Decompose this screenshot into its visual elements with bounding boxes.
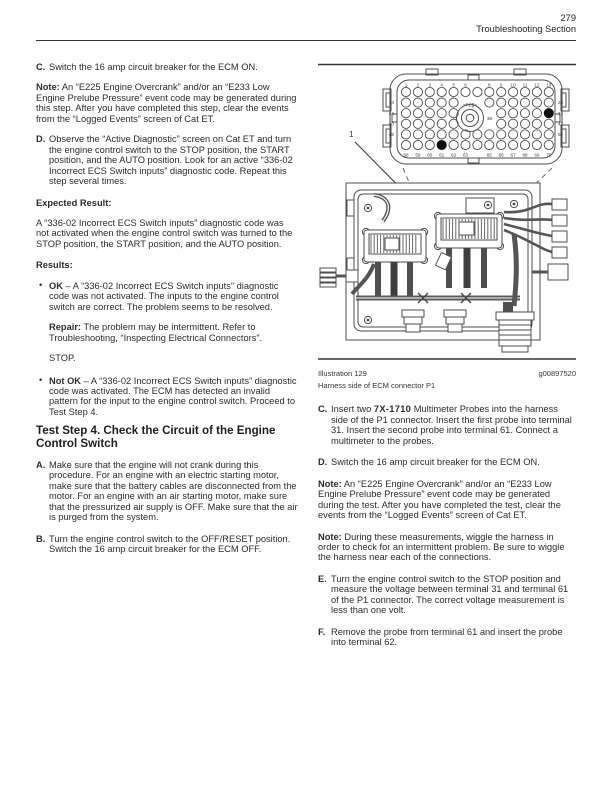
pin-number-label: 6 (464, 83, 467, 88)
pin-number-label: 62 (451, 153, 457, 158)
pin-number-label: 3 (429, 83, 432, 88)
step-f-right: F. Remove the probe from terminal 61 and… (318, 627, 576, 648)
repair-label: Repair: (49, 322, 81, 332)
step-label: D. (36, 134, 45, 144)
figure-number: Illustration 129 (318, 369, 367, 378)
pin-number-label: 5 (452, 83, 455, 88)
step-b-left: B. Turn the engine control switch to the… (36, 534, 298, 555)
bolt-center (367, 207, 370, 210)
result-ok-bullet: • OK – A “336-02 Incorrect ECS Switch in… (36, 281, 298, 312)
pin-number-label: 13 (546, 83, 552, 88)
column-right: 1234568910111213585960616263656667686970… (318, 62, 576, 658)
result-label: OK (49, 281, 63, 291)
expected-result-text: A “336-02 Incorrect ECS Switch inputs” d… (36, 218, 298, 249)
step-a-left: A. Make sure that the engine will not cr… (36, 460, 298, 523)
bolt-center (367, 319, 370, 322)
step-text-before: Insert two (331, 404, 374, 414)
note-text: During these measurements, wiggle the ha… (318, 532, 565, 563)
manual-page: 279 Troubleshooting Section C. Switch th… (0, 0, 612, 792)
step-text: Make sure that the engine will not crank… (49, 460, 298, 522)
pin-number-label: 58 (403, 153, 409, 158)
page-header: 279 Troubleshooting Section (36, 13, 576, 35)
result-notok-bullet: • Not OK – A “336-02 Incorrect ECS Switc… (36, 376, 298, 418)
result-label: Not OK (49, 376, 81, 386)
illustration-129: 1234568910111213585960616263656667686970… (318, 62, 576, 364)
figure-id: g00897520 (538, 369, 576, 378)
pin-number-label: 24 (389, 111, 395, 116)
pin-number-label: 66 (499, 153, 505, 158)
stop-text: STOP. (49, 353, 298, 363)
step-label: C. (318, 404, 327, 414)
bolt-center (487, 204, 490, 207)
step-label: E. (318, 574, 327, 584)
step-label: A. (36, 460, 45, 470)
step-text: Switch the 16 amp circuit breaker for th… (331, 457, 540, 467)
connector-center-pin-label: 36 (487, 116, 493, 122)
step-text: Switch the 16 amp circuit breaker for th… (49, 62, 258, 72)
pin-number-label: 1 (405, 83, 408, 88)
pin-number-label: 65 (487, 153, 493, 158)
test-step-4-heading: Test Step 4. Check the Circuit of the En… (36, 425, 298, 451)
pin-number-label: 47 (558, 121, 564, 126)
repair-text: The problem may be intermittent. Refer t… (49, 322, 262, 342)
note-label: Note: (318, 532, 342, 542)
pin-number-label: 69 (534, 153, 540, 158)
note-label: Note: (318, 479, 342, 489)
pin-number-label: 10 (511, 83, 517, 88)
pin-number-label: 59 (415, 153, 421, 158)
ecm-connector-diagram: 1234568910111213585960616263656667686970… (318, 62, 576, 362)
note-text: An “E225 Engine Overcrank” and/or an “E2… (36, 82, 296, 123)
pin-number-label: 11 (523, 83, 528, 88)
step-e-right: E. Turn the engine control switch to the… (318, 574, 576, 616)
step-c-left: C. Switch the 16 amp circuit breaker for… (36, 62, 298, 72)
results-heading: Results: (36, 260, 298, 270)
expected-result-heading: Expected Result: (36, 198, 298, 208)
pin-number-label: 31 (558, 111, 564, 116)
pin-number-label: 70 (546, 153, 552, 158)
note-paragraph: Note: An “E225 Engine Overcrank” and/or … (318, 479, 576, 521)
pin-number-label: 4 (440, 83, 443, 88)
pin-number-label: 60 (427, 153, 433, 158)
figure-caption: Harness side of ECM connector P1 (318, 381, 576, 390)
pin-number-label: 67 (511, 153, 517, 158)
step-text: Turn the engine control switch to the OF… (49, 534, 290, 554)
connector-center-mark: >PE[]< (463, 103, 477, 108)
step-d-right: D. Switch the 16 amp circuit breaker for… (318, 457, 576, 467)
page-number: 279 (36, 13, 576, 24)
step-text: Remove the probe from terminal 61 and in… (331, 627, 563, 647)
pin-number-label: 2 (417, 83, 420, 88)
column-left: C. Switch the 16 amp circuit breaker for… (36, 62, 298, 565)
pin-number-label: 23 (558, 100, 564, 105)
step-d-left: D. Observe the “Active Diagnostic” scree… (36, 134, 298, 186)
bullet-glyph: • (39, 280, 42, 290)
step-text: Turn the engine control switch to the ST… (331, 574, 568, 615)
pin-number-label: 8 (488, 83, 491, 88)
step-text: Observe the “Active Diagnostic” screen o… (49, 134, 293, 186)
bullet-glyph: • (39, 375, 42, 385)
pin-number-label: 68 (522, 153, 528, 158)
result-text: A “336-02 Incorrect ECS Switch inputs” d… (49, 281, 279, 312)
pin-number-label: 9 (500, 83, 503, 88)
note-text: An “E225 Engine Overcrank” and/or an “E2… (318, 479, 561, 520)
pin-number-label: 14 (389, 100, 395, 105)
pin-number-label: 61 (439, 153, 445, 158)
pin-number-label: 57 (558, 132, 564, 137)
step-label: B. (36, 534, 45, 544)
pin-number-label: 40 (389, 121, 395, 126)
callout-1-label: 1 (349, 129, 354, 139)
pin-number-label: 63 (463, 153, 469, 158)
step-label: F. (318, 627, 325, 637)
dash: – (66, 281, 71, 291)
repair-paragraph: Repair: The problem may be intermittent.… (49, 322, 298, 343)
header-rule (36, 40, 576, 41)
step-c-right: C. Insert two 7X-1710 Multimeter Probes … (318, 404, 576, 446)
highlighted-pin (437, 140, 446, 149)
note-paragraph: Note: During these measurements, wiggle … (318, 532, 576, 563)
note-paragraph: Note: An “E225 Engine Overcrank” and/or … (36, 82, 298, 124)
pin-number-label: 48 (389, 132, 395, 137)
dash: – (84, 376, 89, 386)
note-label: Note: (36, 82, 60, 92)
part-number: 7X-1710 (374, 404, 411, 414)
highlighted-pin (544, 109, 553, 118)
step-label: C. (36, 62, 45, 72)
step-label: D. (318, 457, 327, 467)
pin-number-label: 12 (534, 83, 540, 88)
section-title: Troubleshooting Section (36, 24, 576, 35)
figure-meta: Illustration 129 g00897520 (318, 369, 576, 378)
bolt-center (513, 203, 516, 206)
